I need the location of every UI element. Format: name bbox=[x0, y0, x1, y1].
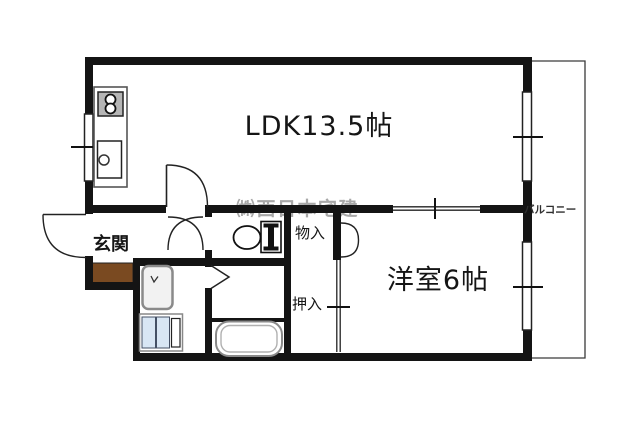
toilet-icon bbox=[234, 222, 282, 253]
room-label-balcony: バルコニー bbox=[524, 205, 596, 216]
washbasin-unit bbox=[143, 266, 173, 309]
entrance-step bbox=[87, 263, 133, 283]
toilet-tank-detail bbox=[268, 224, 274, 251]
closet-fusuma-doors bbox=[327, 260, 350, 352]
wall-entrance-bottom bbox=[85, 282, 140, 290]
stove-burner-icon bbox=[106, 104, 116, 114]
wall-hall-stub bbox=[205, 213, 212, 217]
wall-mid-center bbox=[205, 205, 393, 213]
room-label-storage: 物入 bbox=[290, 226, 330, 241]
entrance-door bbox=[43, 215, 86, 258]
sliding-door-ldk-western bbox=[393, 198, 480, 219]
wall-bottom bbox=[133, 353, 532, 361]
hall-door-swing-arc bbox=[168, 217, 203, 250]
ldk-door-swing-arc bbox=[167, 165, 208, 207]
bathroom-folding-door bbox=[211, 266, 229, 289]
room-label-ldk: LDK13.5帖 bbox=[236, 113, 402, 140]
storage-double-doors bbox=[341, 223, 359, 257]
wall-top bbox=[85, 57, 532, 65]
toilet-bowl bbox=[234, 226, 261, 249]
entrance-door-swing-arc bbox=[43, 215, 86, 258]
bathtub-icon bbox=[216, 322, 282, 357]
ldk-door bbox=[167, 165, 208, 207]
storage-door-arc-top bbox=[341, 223, 359, 240]
kitchen-unit bbox=[94, 87, 127, 187]
room-label-entrance: 玄関 bbox=[86, 236, 136, 254]
floor-plan: ㈱西日本宅建 bbox=[0, 0, 640, 428]
wall-bath-left bbox=[205, 288, 212, 354]
wall-storage-right bbox=[333, 205, 341, 260]
wall-right-upper bbox=[523, 57, 532, 93]
washing-machine-pan-pane bbox=[157, 317, 170, 348]
hall-doors bbox=[168, 217, 203, 250]
washing-machine-pan-drain bbox=[172, 319, 181, 348]
wall-left-upper bbox=[85, 57, 93, 115]
room-label-closet: 押入 bbox=[287, 297, 327, 312]
sink-drain-icon bbox=[99, 155, 109, 165]
toilet-door-swing-arc bbox=[168, 217, 203, 250]
washbasin-icon bbox=[143, 266, 173, 309]
storage-door-arc-bottom bbox=[341, 240, 359, 257]
washing-machine-pan-pane bbox=[142, 317, 156, 348]
laundry-area bbox=[140, 314, 183, 351]
wall-mid-left bbox=[85, 205, 166, 213]
room-label-western-room: 洋室6帖 bbox=[368, 267, 508, 294]
